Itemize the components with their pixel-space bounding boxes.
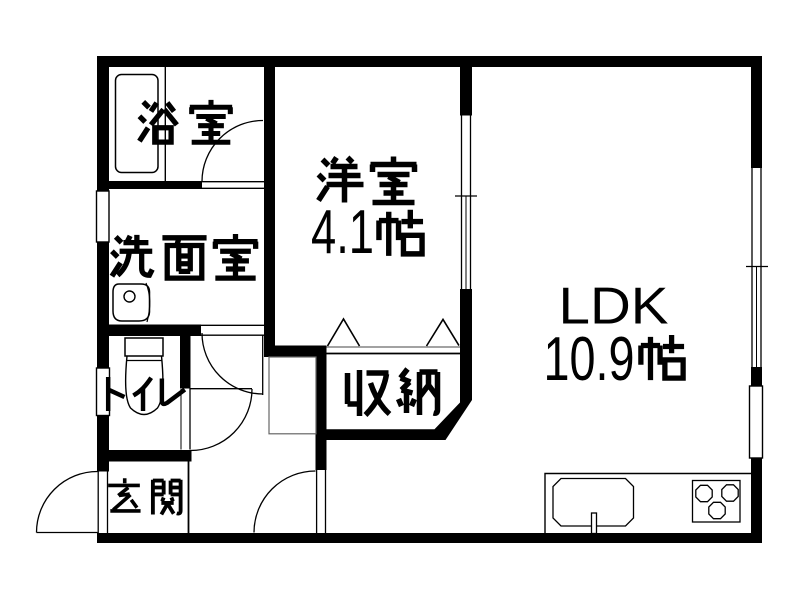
svg-text:10.9: 10.9 (544, 325, 635, 394)
svg-text:4.1: 4.1 (311, 198, 374, 267)
